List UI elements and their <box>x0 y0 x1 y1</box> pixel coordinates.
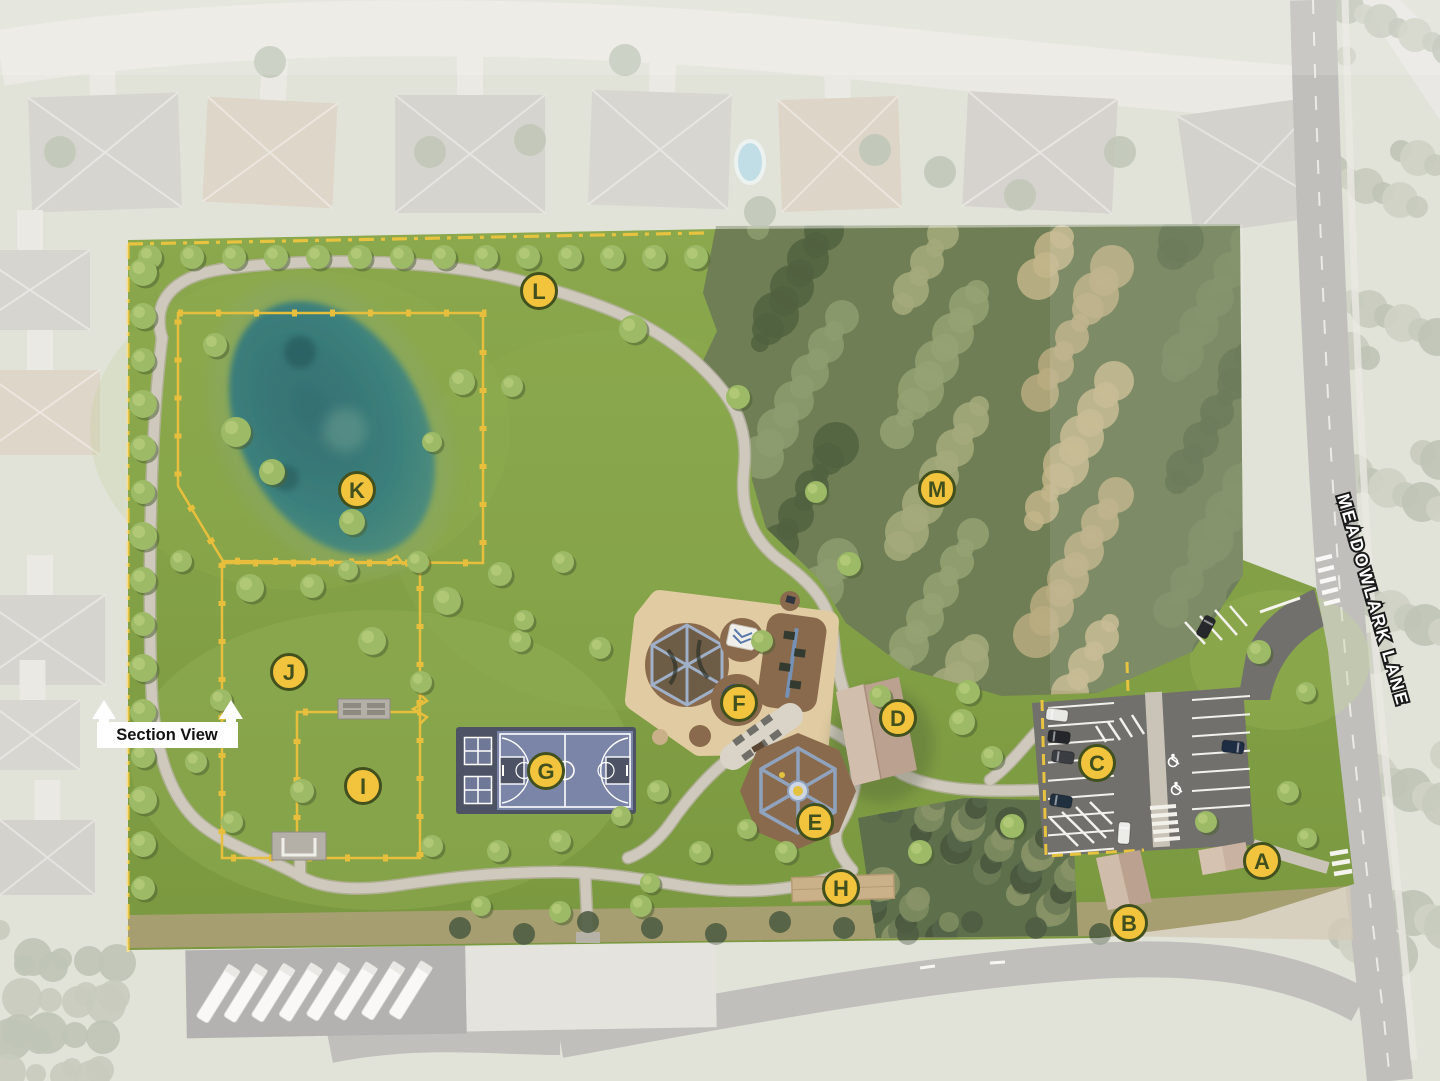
marker-J: J <box>272 655 307 690</box>
svg-text:G: G <box>537 759 554 784</box>
park-master-plan: Section View MEADOWLARK LANE ABCDEFGHIJK… <box>0 0 1440 1081</box>
section-view-label: Section View <box>116 726 218 744</box>
marker-D: D <box>881 701 916 736</box>
svg-text:D: D <box>890 706 906 731</box>
svg-text:A: A <box>1254 849 1270 874</box>
marker-C: C <box>1080 746 1115 781</box>
svg-text:J: J <box>283 660 295 685</box>
svg-text:M: M <box>928 477 946 502</box>
svg-text:C: C <box>1089 751 1105 776</box>
park-area <box>90 211 1370 956</box>
trail-pad <box>576 932 600 943</box>
marker-L: L <box>522 274 557 309</box>
marker-K: K <box>340 473 375 508</box>
marker-I: I <box>346 769 381 804</box>
marker-E: E <box>798 805 833 840</box>
marker-A: A <box>1245 844 1280 879</box>
car <box>1047 730 1070 745</box>
marker-G: G <box>529 754 564 789</box>
svg-text:H: H <box>833 876 849 901</box>
marker-B: B <box>1112 906 1147 941</box>
car <box>1221 740 1244 754</box>
svg-text:L: L <box>532 279 545 304</box>
marker-H: H <box>824 871 859 906</box>
svg-text:B: B <box>1121 911 1137 936</box>
svg-text:K: K <box>349 478 365 503</box>
site-plan-svg: Section View MEADOWLARK LANE ABCDEFGHIJK… <box>0 0 1440 1081</box>
svg-text:I: I <box>360 774 366 799</box>
svg-text:E: E <box>808 810 823 835</box>
marker-M: M <box>920 472 955 507</box>
car <box>1051 750 1074 765</box>
car <box>1117 822 1131 845</box>
marker-F: F <box>722 686 757 721</box>
top-fade <box>0 0 1440 75</box>
car <box>1045 708 1068 723</box>
svg-text:F: F <box>732 691 745 716</box>
